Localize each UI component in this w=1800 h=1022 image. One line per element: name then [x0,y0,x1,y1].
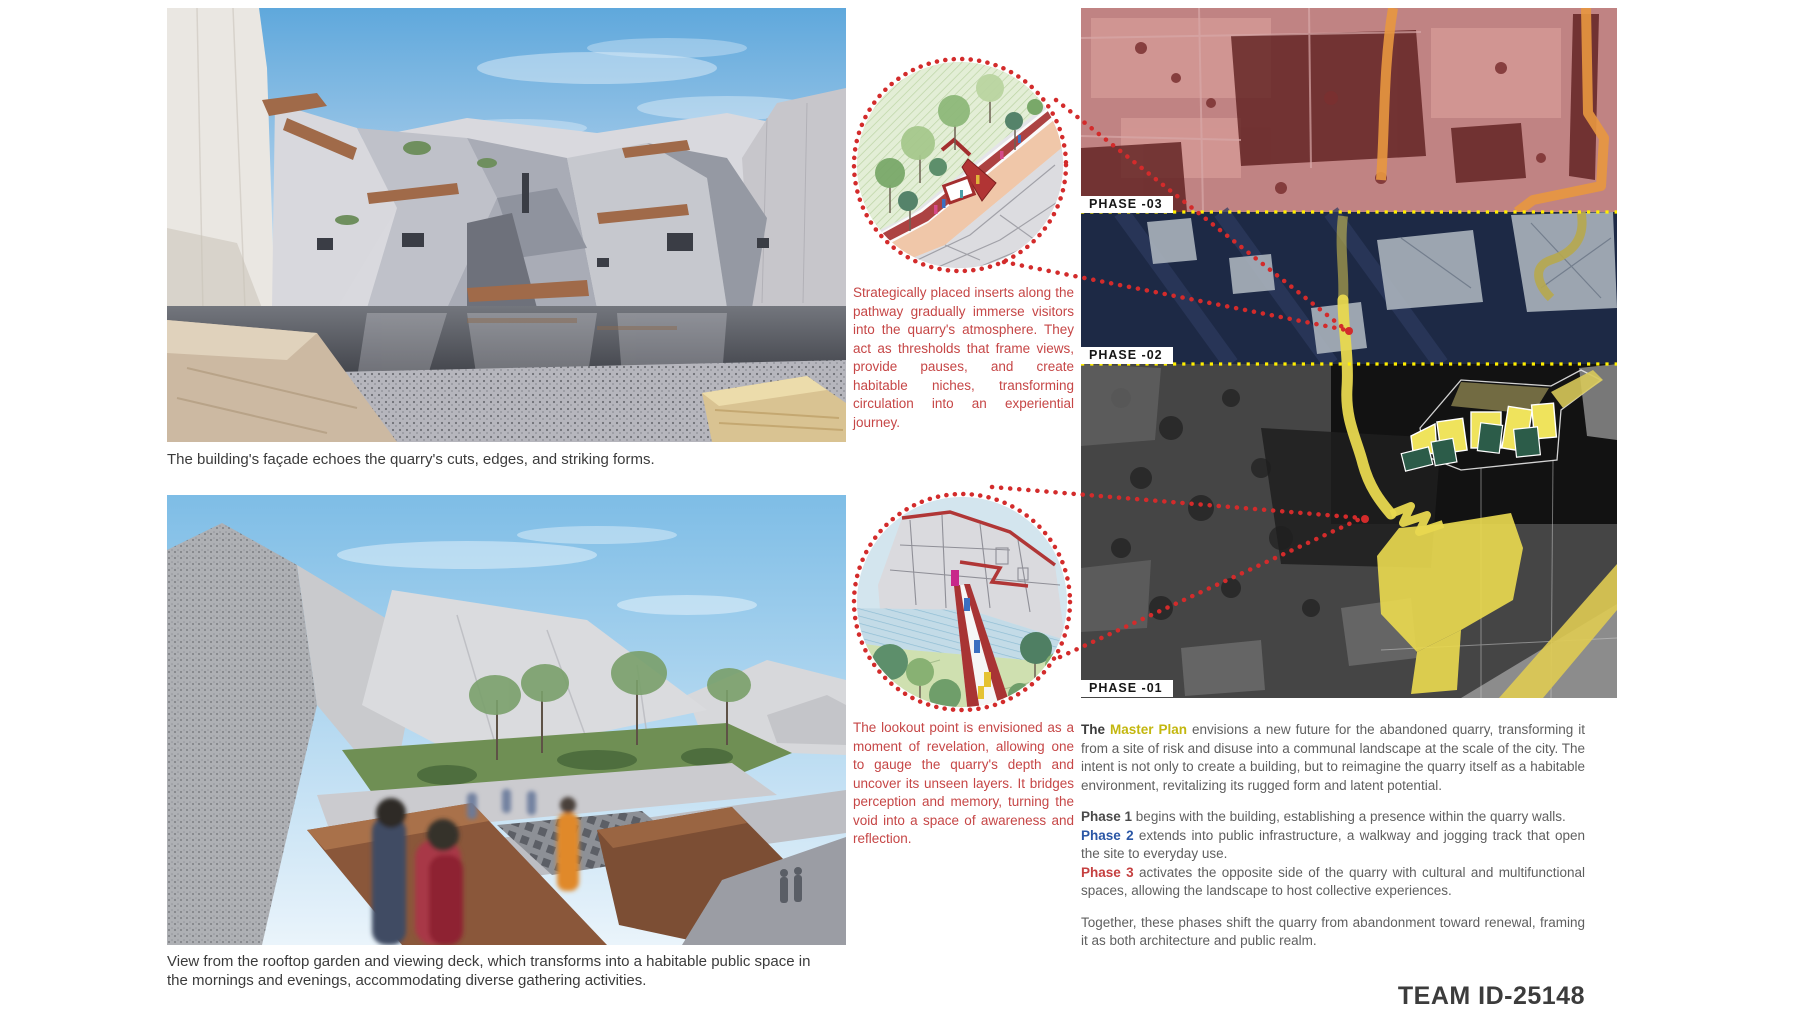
phase1-paragraph: Phase 1 begins with the building, establ… [1081,808,1585,827]
render-facade-image [167,8,846,442]
phase1-map-label: PHASE -01 [1081,680,1173,697]
phasing-map: PHASE -03 PHASE -02 PHASE -01 [1081,8,1617,698]
lookout-callout-text: The lookout point is envisioned as a mom… [853,719,1074,849]
render2-caption: View from the rooftop garden and viewing… [167,952,817,990]
inserts-callout-text: Strategically placed inserts along the p… [853,284,1074,432]
inserts-diagram [850,55,1070,275]
phase1-text: begins with the building, establishing a… [1132,809,1566,824]
phase3-text: activates the opposite side of the quarr… [1081,865,1585,899]
masterplan-text-block: The Master Plan envisions a new future f… [1081,721,1585,951]
phase2-label: Phase 2 [1081,828,1134,843]
phase1-label: Phase 1 [1081,809,1132,824]
phase3-paragraph: Phase 3 activates the opposite side of t… [1081,864,1585,901]
map-phase3-zone [1081,8,1617,212]
intro-prefix: The [1081,722,1110,737]
phase3-map-label: PHASE -03 [1081,196,1173,213]
lookout-diagram [850,490,1074,714]
inserts-detail-circle [850,55,1070,275]
masterplan-highlight: Master Plan [1110,722,1187,737]
phase2-text: extends into public infrastructure, a wa… [1081,828,1585,862]
masterplan-intro: The Master Plan envisions a new future f… [1081,721,1585,795]
rooftop-render-illustration [167,495,846,945]
render1-caption: The building's façade echoes the quarry'… [167,450,807,469]
render-rooftop-image [167,495,846,945]
phase2-paragraph: Phase 2 extends into public infrastructu… [1081,827,1585,864]
team-id: TEAM ID-25148 [1081,982,1585,1011]
facade-render-illustration [167,8,846,442]
phase3-label: Phase 3 [1081,865,1134,880]
lookout-detail-circle [850,490,1074,714]
closing-paragraph: Together, these phases shift the quarry … [1081,914,1585,951]
phase2-map-label: PHASE -02 [1081,347,1173,364]
competition-board: The building's façade echoes the quarry'… [0,0,1800,1022]
